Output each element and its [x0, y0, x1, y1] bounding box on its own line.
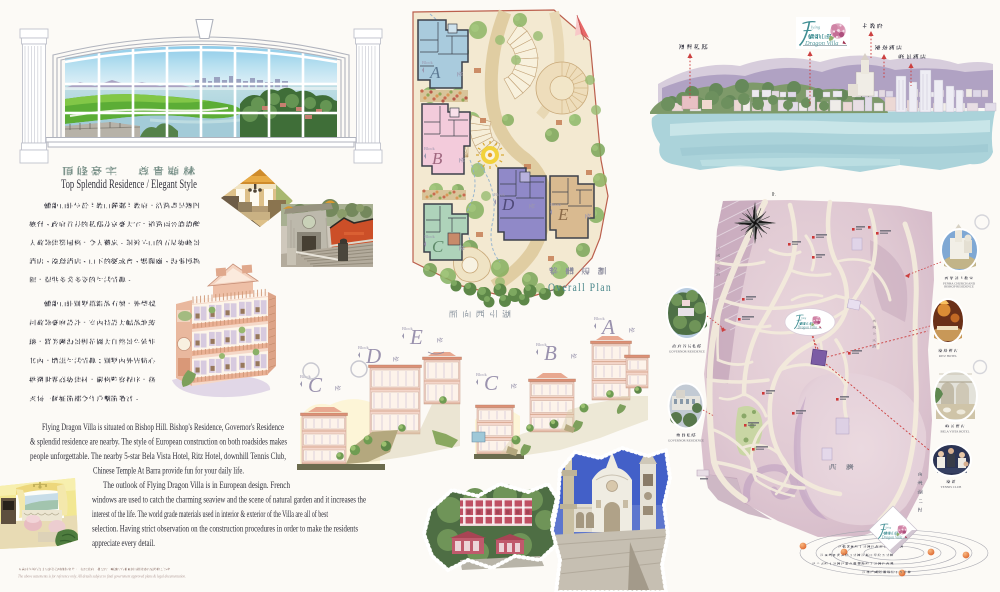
svg-text:selection. Having strict obser: selection. Having strict observation on … [92, 524, 358, 535]
svg-text:lying: lying [811, 25, 821, 30]
svg-text:& splendid residence are nearb: & splendid residence are nearby. The sty… [30, 437, 287, 448]
svg-text:The above statements is for re: The above statements is for reference on… [18, 574, 186, 579]
svg-text:lying: lying [885, 525, 891, 529]
svg-text:The outlook of Flying Dragon V: The outlook of Flying Dragon Villa is in… [103, 480, 290, 491]
svg-text:Top Splendid Residence / Elega: Top Splendid Residence / Elegant Style [61, 177, 197, 191]
svg-text:BISHOP RESIDENCE: BISHOP RESIDENCE [944, 285, 974, 289]
svg-text:A: A [600, 315, 615, 339]
svg-text:Dragon Villa: Dragon Villa [796, 325, 817, 329]
svg-text:D: D [365, 344, 381, 368]
svg-text:D: D [501, 195, 515, 214]
svg-text:Dragon Villa: Dragon Villa [881, 534, 903, 539]
svg-text:B: B [544, 341, 557, 365]
svg-text:interest of the life. The wor: interest of the life. The world grade ma… [92, 509, 328, 520]
svg-text:appreciate every detail.: appreciate every detail. [92, 538, 155, 549]
svg-text:B: B [432, 149, 443, 168]
svg-text:Overall Plan: Overall Plan [548, 282, 612, 294]
svg-text:E: E [409, 325, 423, 349]
svg-text:lying: lying [801, 317, 807, 320]
svg-text:Chinese Temple At Barra provid: Chinese Temple At Barra provide fun for … [93, 466, 244, 477]
svg-text:A: A [429, 63, 441, 82]
svg-text:RITZ HOTEL: RITZ HOTEL [939, 354, 957, 358]
svg-text:BELA VISTA HOTEL: BELA VISTA HOTEL [940, 430, 969, 434]
svg-text:C: C [484, 371, 499, 395]
svg-text:C: C [432, 237, 444, 256]
svg-text:windows are used to catch the: windows are used to catch the charming s… [92, 495, 366, 506]
svg-text:Flying Dragon Villa is situate: Flying Dragon Villa is situated on Bisho… [42, 422, 284, 433]
svg-text:people unforgettable. The near: people unforgettable. The nearby 5-star … [30, 451, 286, 462]
svg-text:GOVERNOR RESIDENCE: GOVERNOR RESIDENCE [668, 439, 704, 443]
svg-text:GOVERNOR RESIDENCE: GOVERNOR RESIDENCE [669, 350, 705, 354]
svg-text:E: E [557, 205, 569, 224]
svg-text:TENNIS CLUB: TENNIS CLUB [941, 485, 962, 489]
svg-text:Dragon Villa: Dragon Villa [804, 40, 838, 47]
svg-text:C: C [308, 373, 323, 397]
